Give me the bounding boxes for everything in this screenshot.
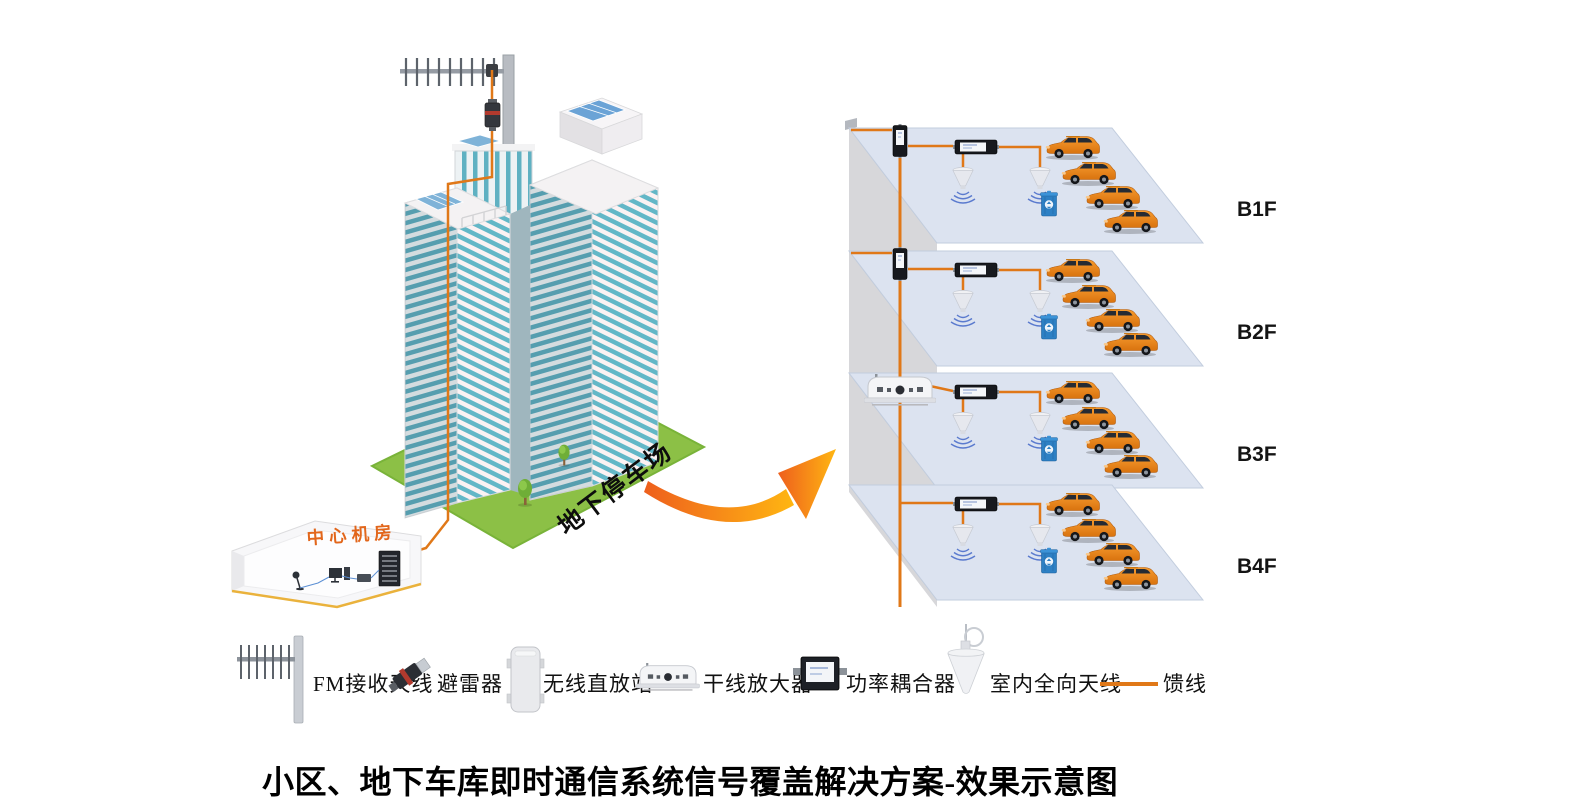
floor-label-b2f: B2F [1237, 321, 1277, 344]
legend-label-power-coupler: 功率耦合器 [846, 672, 956, 696]
legend-label-repeater: 无线直放站 [543, 672, 653, 696]
trash-bin [1041, 436, 1058, 461]
trunk-amplifier-icon [637, 663, 700, 691]
diagram-svg: 中心机房 地下停车场 [0, 0, 1587, 811]
legend: FM接收天线 避雷器 无线直放站 干线放大器 功率耦合器 [237, 624, 1207, 723]
yagi-antenna-icon [237, 636, 303, 723]
vertical-coupler [893, 124, 907, 158]
legend-label-trunk-amplifier: 干线放大器 [703, 672, 813, 696]
trash-bin [1041, 191, 1058, 216]
power-coupler [953, 263, 999, 277]
machine-room: 中心机房 [232, 521, 421, 607]
building-group [372, 55, 704, 556]
trunk-amplifier [864, 374, 936, 406]
lightning-arrester [485, 99, 500, 131]
power-coupler [953, 385, 999, 399]
underground-parking-structure [845, 118, 1203, 607]
trash-bin [1041, 548, 1058, 573]
power-coupler-icon [793, 657, 847, 690]
floor-label-b1f: B1F [1237, 198, 1277, 221]
diagram-title: 小区、地下车库即时通信系统信号覆盖解决方案-效果示意图 [262, 764, 1118, 800]
legend-label-feeder: 馈线 [1163, 672, 1207, 696]
trash-bin [1041, 314, 1058, 339]
power-coupler [953, 497, 999, 511]
vertical-coupler [893, 247, 907, 281]
tower-connector [510, 205, 530, 496]
power-coupler [953, 140, 999, 154]
left-tower [405, 188, 510, 518]
fm-yagi-antenna [400, 58, 504, 86]
wireless-repeater-icon [507, 647, 544, 712]
diagram-canvas: 中心机房 地下停车场 [0, 0, 1587, 811]
floor-label-b3f: B3F [1237, 443, 1277, 466]
equipment-rack [379, 551, 400, 586]
legend-label-arrester: 避雷器 [437, 672, 503, 696]
mid-roof-band [452, 144, 535, 151]
floor-label-b4f: B4F [1237, 555, 1277, 578]
right-tower [530, 98, 658, 500]
